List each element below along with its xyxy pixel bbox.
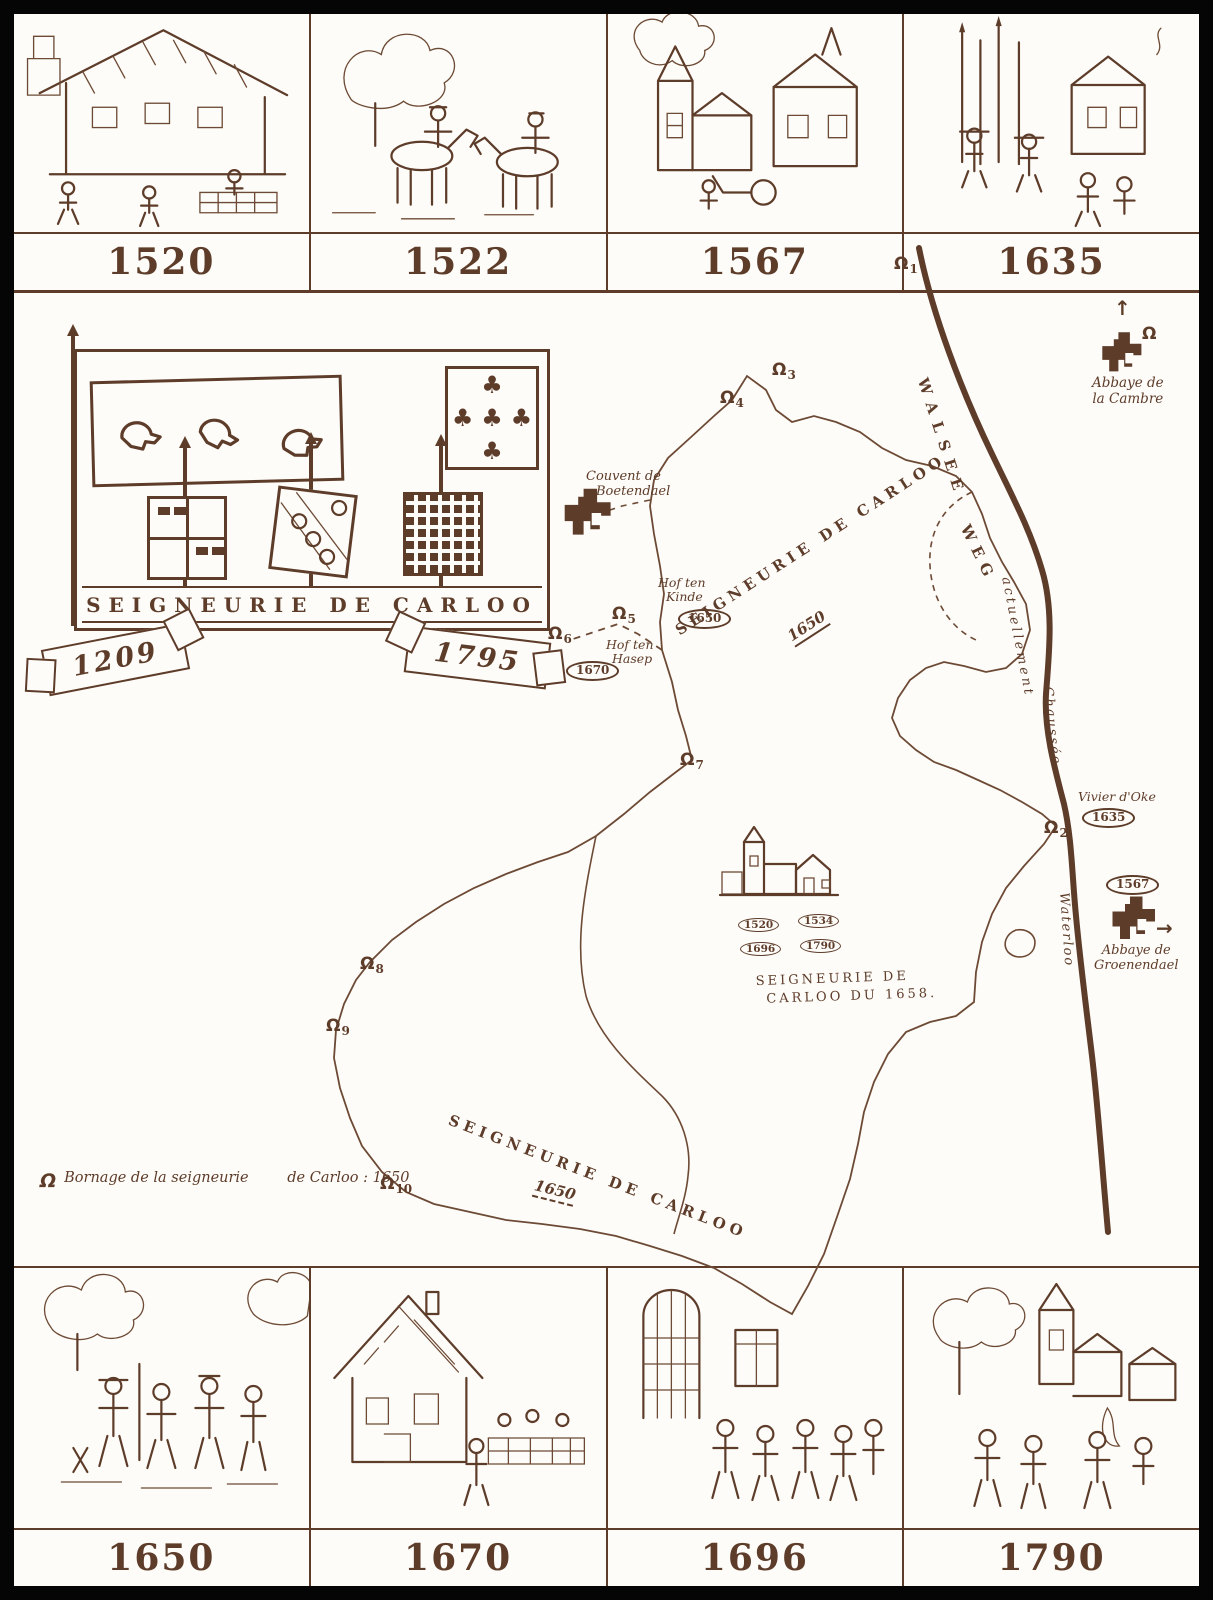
- boundary-marker-icon: Ω: [380, 1176, 394, 1193]
- arrow-right-icon: →: [1156, 916, 1173, 940]
- boundary-marker-2: Ω2: [1044, 820, 1068, 840]
- vignette-sketch-1635: [904, 14, 1199, 232]
- hamlet-year-1520: 1520: [738, 914, 779, 932]
- shield-fretty-icon: [403, 492, 483, 576]
- vignette-1522: 1522: [311, 14, 608, 293]
- vignette-year-1522: 1522: [311, 232, 606, 293]
- vignette-1650: 1650: [14, 1268, 311, 1586]
- road-label-weg: WEG: [956, 522, 999, 585]
- heraldic-panel-title: SEIGNEURIE DE CARLOO: [82, 586, 542, 623]
- vignette-year-1520: 1520: [14, 232, 309, 293]
- vignette-sketch-1790: [904, 1268, 1199, 1528]
- arrow-up-icon: ↑: [1114, 296, 1131, 320]
- road-label-actuellement: actuellement: [997, 576, 1035, 699]
- boundary-marker-icon: Ω: [772, 362, 786, 379]
- boundary-marker-9: Ω9: [326, 1018, 350, 1038]
- boundary-marker-1: Ω1: [894, 256, 918, 276]
- hamlet-year-1534: 1534: [798, 910, 839, 928]
- shield-bend-shells-icon: [268, 485, 358, 578]
- road-label-chaussee: Chaussée: [1039, 686, 1062, 766]
- helmet-flag-icon: [90, 375, 345, 488]
- vignette-year-1790: 1790: [904, 1528, 1199, 1586]
- weg-lobe-outline: [930, 492, 976, 640]
- vignette-year-1567: 1567: [608, 232, 903, 293]
- groenendael-church-icon: [1110, 894, 1160, 944]
- top-vignette-strip: 1520 1522: [14, 14, 1199, 293]
- boundary-marker-icon: Ω: [1044, 820, 1058, 837]
- boundary-marker-7: Ω7: [680, 752, 704, 772]
- boundary-marker-5: Ω5: [612, 606, 636, 626]
- trefoil-icon: ♣: [511, 406, 533, 430]
- vignette-1520: 1520: [14, 14, 311, 293]
- helmet-icon: [269, 413, 330, 468]
- boundary-marker-icon: Ω: [894, 256, 908, 273]
- road-label-waterloo: Waterloo: [1055, 892, 1075, 968]
- boundary-marker-icon: Ω: [360, 956, 374, 973]
- cambre-church-icon: [1100, 330, 1146, 376]
- carloo-hamlet-sketch: [714, 822, 846, 922]
- boundary-marker-icon: Ω: [680, 752, 694, 769]
- map-legend: Ω Bornage de la seigneurie de Carloo : 1…: [40, 1170, 410, 1191]
- banner-pole-icon: [71, 336, 75, 626]
- shield-quartered-icon: [147, 496, 227, 580]
- vignette-1567: 1567: [608, 14, 905, 293]
- historical-map-page: 1520 1522: [0, 0, 1213, 1600]
- bottom-vignette-strip: 1650 1670: [14, 1266, 1199, 1586]
- vignette-1670: 1670: [311, 1268, 608, 1586]
- label-seigneurie-1650-south: SEIGNEURIE DE CARLOO: [446, 1112, 750, 1242]
- boundary-marker-6: Ω6: [548, 626, 572, 646]
- vignette-year-1696: 1696: [608, 1528, 903, 1586]
- label-vivier-oke-year: 1635: [1082, 807, 1135, 828]
- boundary-marker-icon: Ω: [326, 1018, 340, 1035]
- label-hof-ten-kinde: Hof ten Kinde: [658, 576, 706, 605]
- legend-text: Bornage de la seigneurie de Carloo : 165…: [64, 1170, 409, 1186]
- vignette-1696: 1696: [608, 1268, 905, 1586]
- label-hof-ten-hasep-year: 1670: [566, 660, 619, 681]
- boundary-marker-icon: Ω: [40, 1172, 56, 1191]
- trefoil-icon: ♣: [481, 406, 503, 430]
- label-couvent: Couvent de Boetendael: [586, 470, 670, 500]
- vignette-sketch-1670: [311, 1268, 606, 1528]
- boundary-marker-icon: Ω: [720, 390, 734, 407]
- boundary-marker-4: Ω4: [720, 390, 744, 410]
- ribbon-1795: 1795: [404, 625, 552, 689]
- vignette-1635: 1635: [904, 14, 1199, 293]
- vignette-sketch-1696: [608, 1268, 903, 1528]
- ribbon-1209: 1209: [41, 623, 190, 696]
- pond-outline: [1005, 930, 1035, 957]
- label-abbaye-cambre: Abbaye de la Cambre: [1092, 376, 1164, 407]
- trefoil-icon: ♣: [452, 406, 474, 430]
- vignette-sketch-1650: [14, 1268, 309, 1528]
- label-vivier-oke: Vivier d'Oke: [1078, 790, 1156, 804]
- road-line: [919, 248, 1108, 1232]
- label-groenendael-year: 1567: [1106, 874, 1159, 895]
- label-seigneurie-1658: SEIGNEURIE DE CARLOO DU 1658.: [755, 969, 937, 1008]
- label-seigneurie-1650-south-year: 1650: [533, 1177, 578, 1204]
- vignette-year-1650: 1650: [14, 1528, 309, 1586]
- trefoil-icon: ♣: [481, 439, 503, 463]
- vignette-sketch-1522: [311, 14, 606, 232]
- boundary-marker-8: Ω8: [360, 956, 384, 976]
- vignette-year-1635: 1635: [904, 232, 1199, 293]
- trefoil-icon: ♣: [481, 373, 503, 397]
- helmet-icon: [111, 410, 164, 455]
- vignette-sketch-1567: [608, 14, 903, 232]
- flag-icon: Ω: [1142, 326, 1156, 343]
- vignette-1790: 1790: [904, 1268, 1199, 1586]
- vignette-year-1670: 1670: [311, 1528, 606, 1586]
- boundary-marker-3: Ω3: [772, 362, 796, 382]
- helmet-icon: [187, 404, 247, 458]
- vignette-sketch-1520: [14, 14, 309, 232]
- label-abbaye-groenendael: Abbaye de Groenendael: [1094, 944, 1178, 974]
- boundary-marker-icon: Ω: [548, 626, 562, 643]
- hamlet-year-1696: 1696: [740, 938, 781, 956]
- boundary-marker-10: Ω10: [380, 1176, 412, 1196]
- label-seigneurie-1650-north-year: 1650: [785, 608, 829, 645]
- boundary-marker-icon: Ω: [612, 606, 626, 623]
- hamlet-year-1790: 1790: [800, 935, 841, 953]
- trefoil-banner-icon: ·♣· ♣♣♣ ·♣·: [445, 366, 539, 470]
- heraldic-panel: ·♣· ♣♣♣ ·♣· SEIGNEURIE DE CARLOO: [74, 349, 550, 631]
